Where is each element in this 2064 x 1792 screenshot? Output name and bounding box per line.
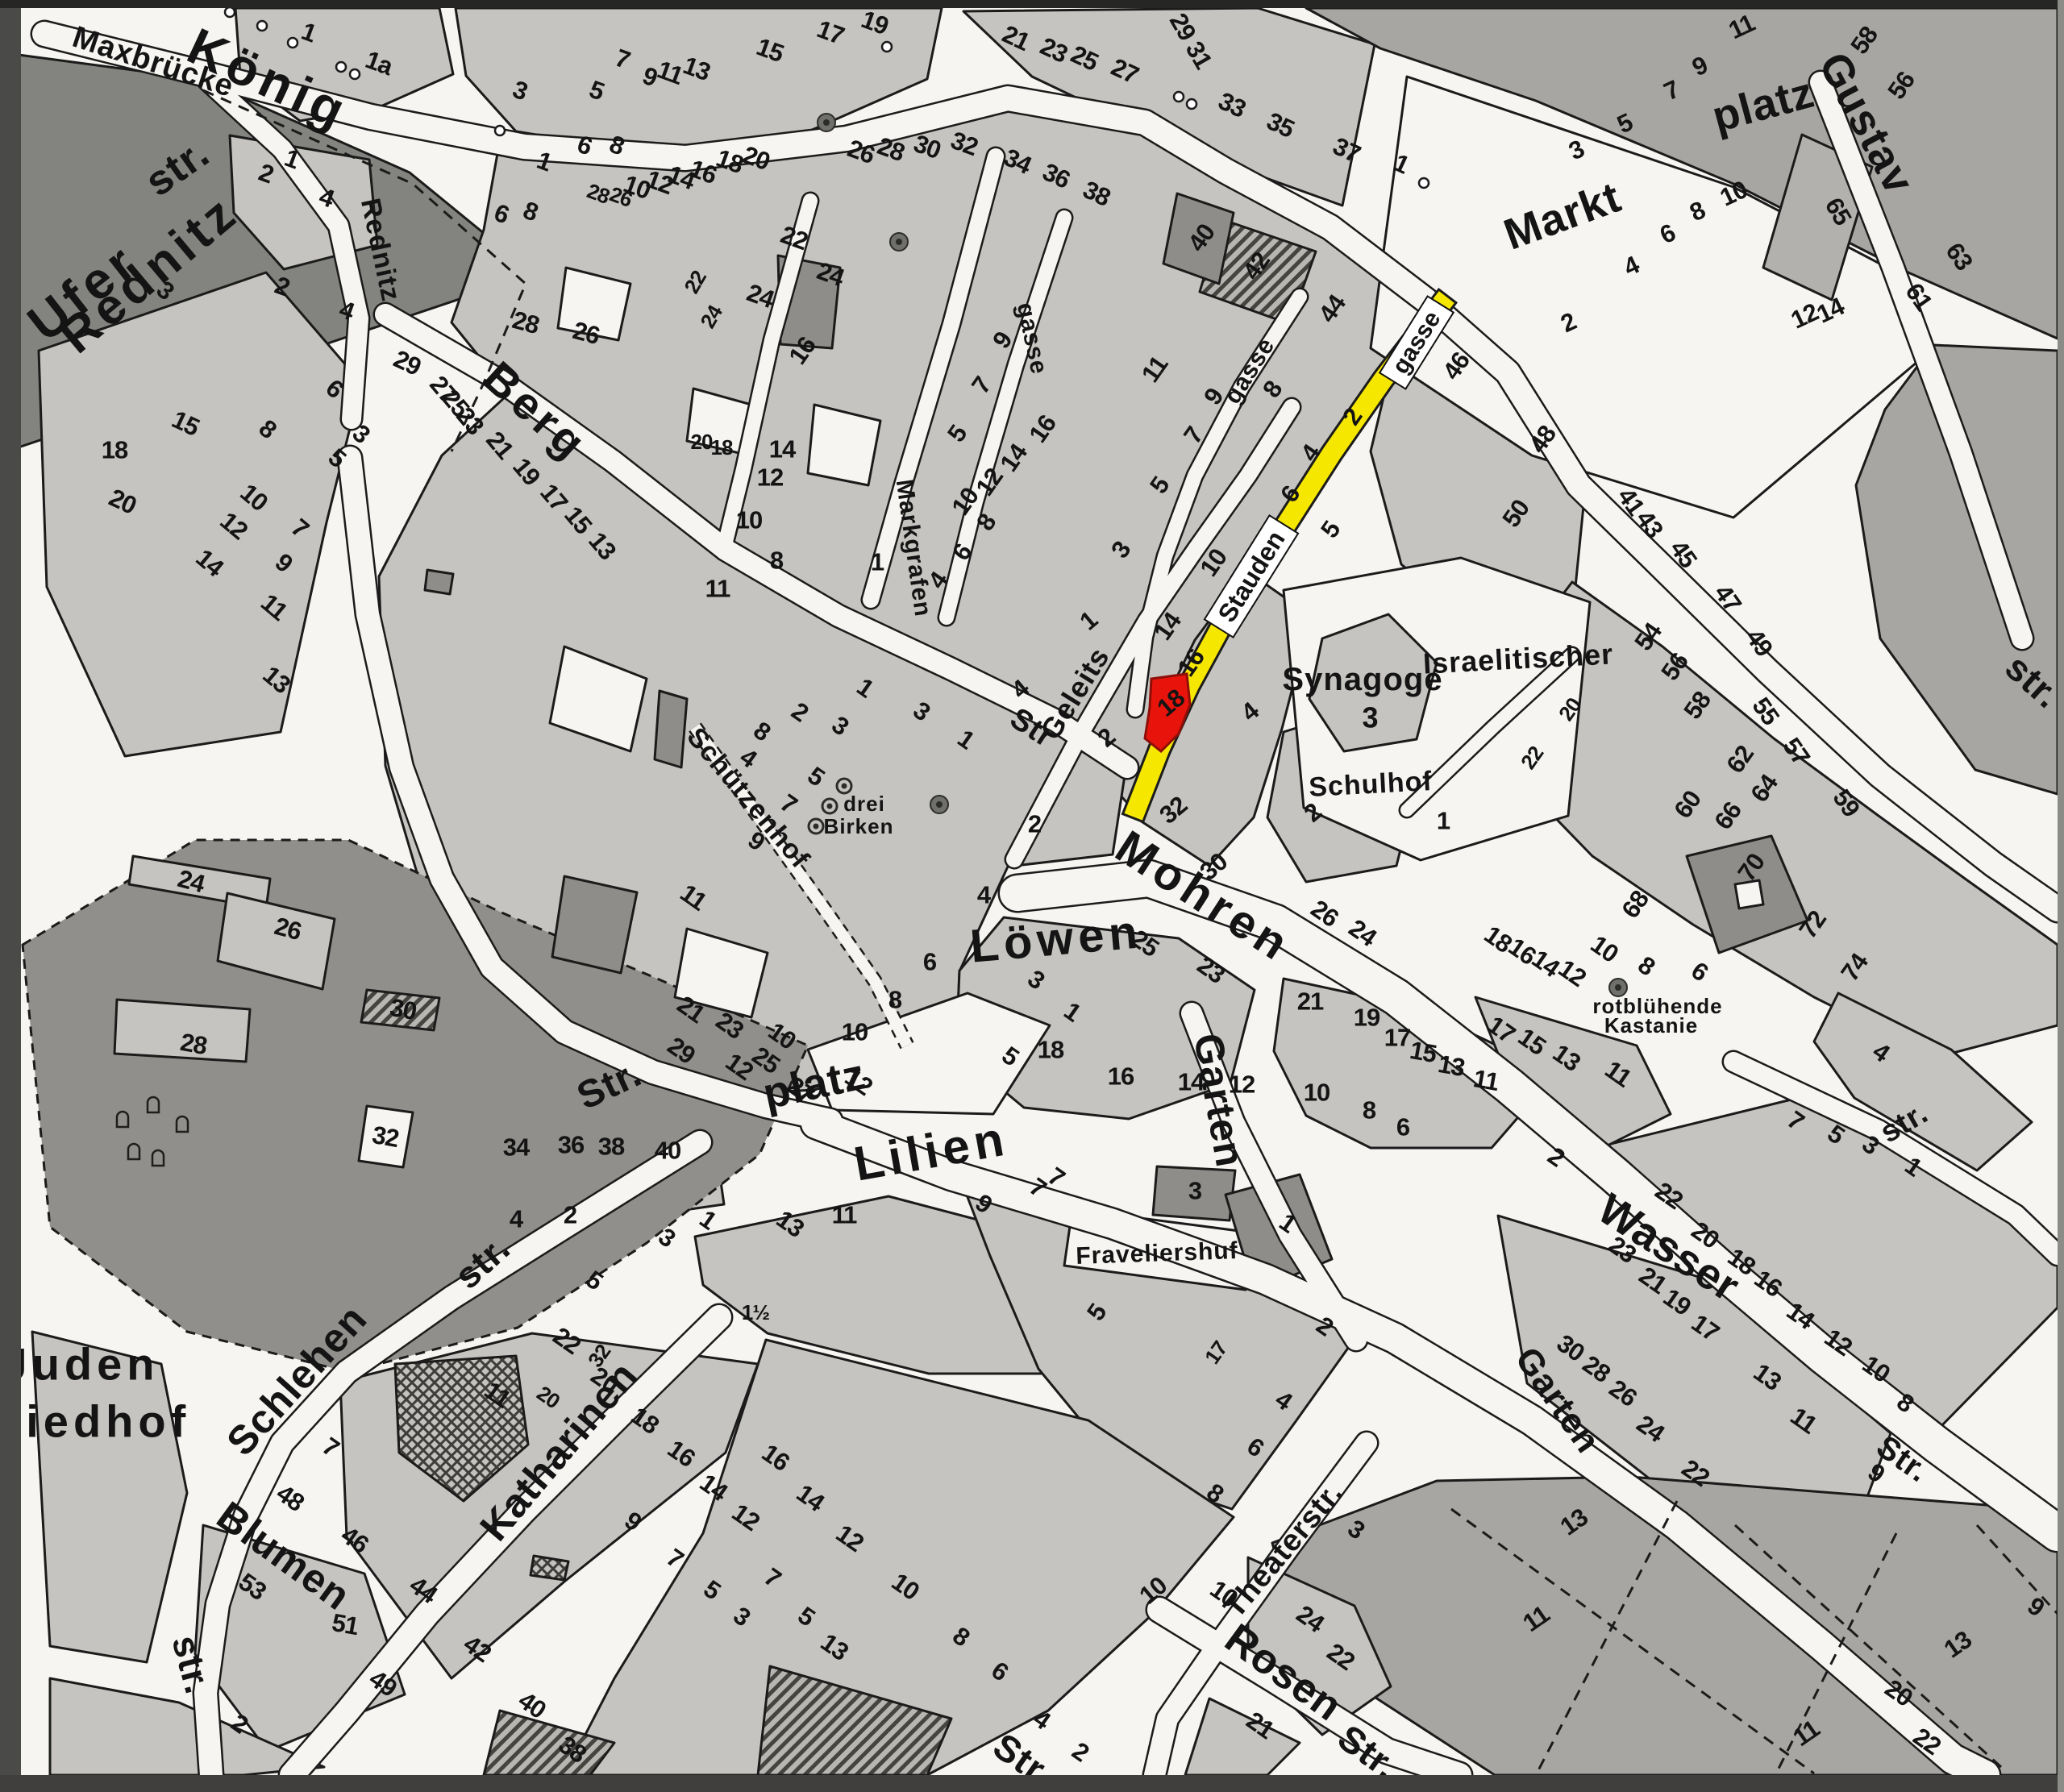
map-stage: Staudengasse11a3579111315171921232527293… (0, 0, 2064, 1792)
street-label: 3 (1362, 701, 1379, 734)
house-number: 1 (871, 548, 884, 576)
boundary-post-icon (1174, 92, 1184, 102)
house-number: 10 (842, 1018, 868, 1046)
dark-building (425, 570, 453, 594)
house-number: 28 (178, 1028, 210, 1060)
scan-border-top (0, 0, 2064, 8)
house-number: 1 (1437, 807, 1450, 835)
scan-border-bottom (0, 1775, 2064, 1792)
boundary-post-icon (336, 62, 346, 72)
street-label: Fraveliershuf (1076, 1237, 1238, 1270)
dark-building (655, 691, 687, 767)
boundary-post-icon (882, 42, 892, 52)
house-number: 1½ (742, 1300, 769, 1324)
house-number: 3 (1188, 1177, 1202, 1205)
house-number: 8 (1363, 1096, 1376, 1125)
boundary-post-icon (225, 7, 235, 17)
crosshatched-building (531, 1556, 568, 1580)
house-number: 8 (888, 986, 902, 1014)
city-map-svg: Staudengasse11a3579111315171921232527293… (0, 0, 2064, 1792)
house-number: 20 (691, 430, 713, 454)
house-number: 19 (1354, 1004, 1380, 1032)
boundary-post-icon (350, 69, 360, 79)
house-number: 38 (598, 1133, 625, 1161)
house-number: 36 (558, 1131, 585, 1159)
street-label: friedhof (0, 1396, 190, 1447)
house-number: 2 (564, 1201, 576, 1229)
street-label: Synagoge (1282, 662, 1442, 697)
boundary-post-icon (1187, 99, 1196, 109)
house-number: 40 (655, 1137, 680, 1165)
house-number: 12 (757, 464, 783, 492)
house-number: 13 (1436, 1050, 1467, 1082)
house-number: 14 (769, 435, 797, 464)
house-number: 17 (1384, 1024, 1410, 1052)
street-label: Birken (824, 814, 894, 838)
boundary-post-icon (495, 126, 505, 135)
house-number: 6 (923, 948, 937, 976)
house-number: 10 (736, 506, 762, 534)
house-number: 10 (1304, 1079, 1330, 1107)
house-number: 18 (102, 436, 128, 464)
boundary-post-icon (288, 38, 298, 48)
scan-border-right (2058, 0, 2064, 1792)
house-number: 4 (977, 881, 992, 909)
house-number: 30 (388, 993, 418, 1025)
street-label: Kastanie (1604, 1013, 1698, 1037)
house-number: 32 (370, 1121, 401, 1153)
house-number: 21 (1297, 987, 1324, 1016)
house-number: 11 (832, 1201, 858, 1229)
house-number: 2 (1028, 810, 1041, 838)
house-number: 16 (1108, 1062, 1134, 1091)
dark-building (552, 876, 637, 973)
scan-border-left (0, 0, 21, 1792)
house-number: 4 (510, 1205, 524, 1233)
street-label: Schulhof (1308, 766, 1433, 803)
house-number: 11 (705, 575, 731, 603)
house-number: 8 (770, 547, 784, 575)
house-number: 34 (503, 1133, 531, 1162)
house-number: 6 (1396, 1113, 1410, 1141)
house-number: 18 (1038, 1036, 1064, 1064)
street-label: Juden (2, 1339, 160, 1390)
boundary-post-icon (257, 21, 267, 31)
house-number: 18 (711, 435, 733, 459)
boundary-post-icon (1419, 178, 1429, 188)
house-number: 15 (1408, 1036, 1439, 1068)
courtyard (1735, 880, 1763, 908)
street-label: drei (843, 792, 885, 816)
